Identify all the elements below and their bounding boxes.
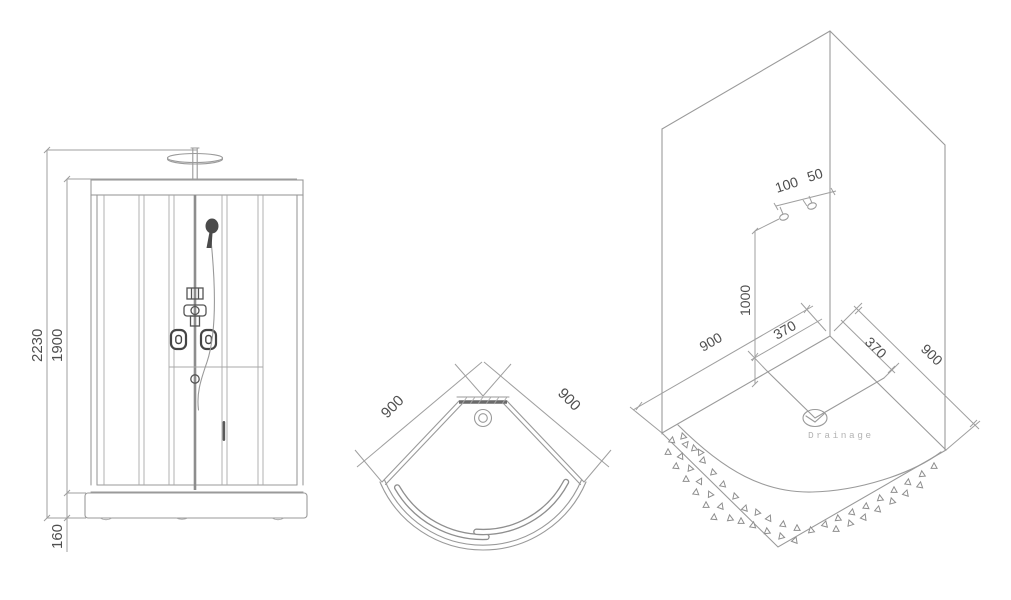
handheld-shower-icon: [198, 219, 219, 411]
dim-base-height-label: 160: [49, 524, 66, 549]
drainage-label: Drainage: [808, 430, 874, 441]
shower-cabin-technical-drawing: 2230 1900 160: [0, 0, 1011, 600]
dim-total-height-label: 2230: [29, 329, 46, 362]
front-dimension-lines: [44, 147, 297, 552]
dim-supply-corner-label: 50: [805, 165, 825, 185]
dim-drain-left-label: 370: [771, 317, 799, 343]
door-handle-icon: [223, 421, 226, 441]
iso-walls: [662, 31, 945, 450]
iso-floor: [662, 336, 946, 547]
isometric-view: Drainage 100 50 1000 900 370: [630, 31, 980, 547]
dim-wall-right-label: 900: [918, 341, 946, 369]
dim-cabin-height-label: 1900: [49, 329, 66, 362]
dim-wall-left-label: 900: [697, 329, 725, 355]
plan-tray-walls: [382, 397, 584, 485]
plan-dim-left-label: 900: [378, 392, 408, 422]
iso-left-dims: [630, 303, 826, 433]
cabin-frame: [91, 180, 303, 492]
control-knobs-icon: [171, 330, 216, 349]
plan-drain-icon: [475, 410, 492, 427]
plan-dim-right-label: 900: [554, 385, 584, 415]
rain-shower-head-icon: [168, 148, 223, 180]
front-elevation-view: 2230 1900 160: [29, 147, 307, 552]
iso-supply-height-dim: [752, 219, 779, 387]
iso-drain-locator: Drainage: [767, 371, 884, 441]
shower-column: [169, 195, 263, 490]
plan-curved-doors: [380, 480, 586, 550]
cabin-base: [85, 493, 307, 520]
iso-right-dims: [834, 303, 980, 450]
iso-floor-hatching: [665, 432, 937, 543]
dim-supply-spacing-label: 100: [773, 173, 800, 196]
plan-view: 900 900: [355, 362, 611, 550]
technical-drawing-page: 2230 1900 160: [0, 0, 1011, 600]
dim-supply-height-label: 1000: [737, 285, 753, 316]
